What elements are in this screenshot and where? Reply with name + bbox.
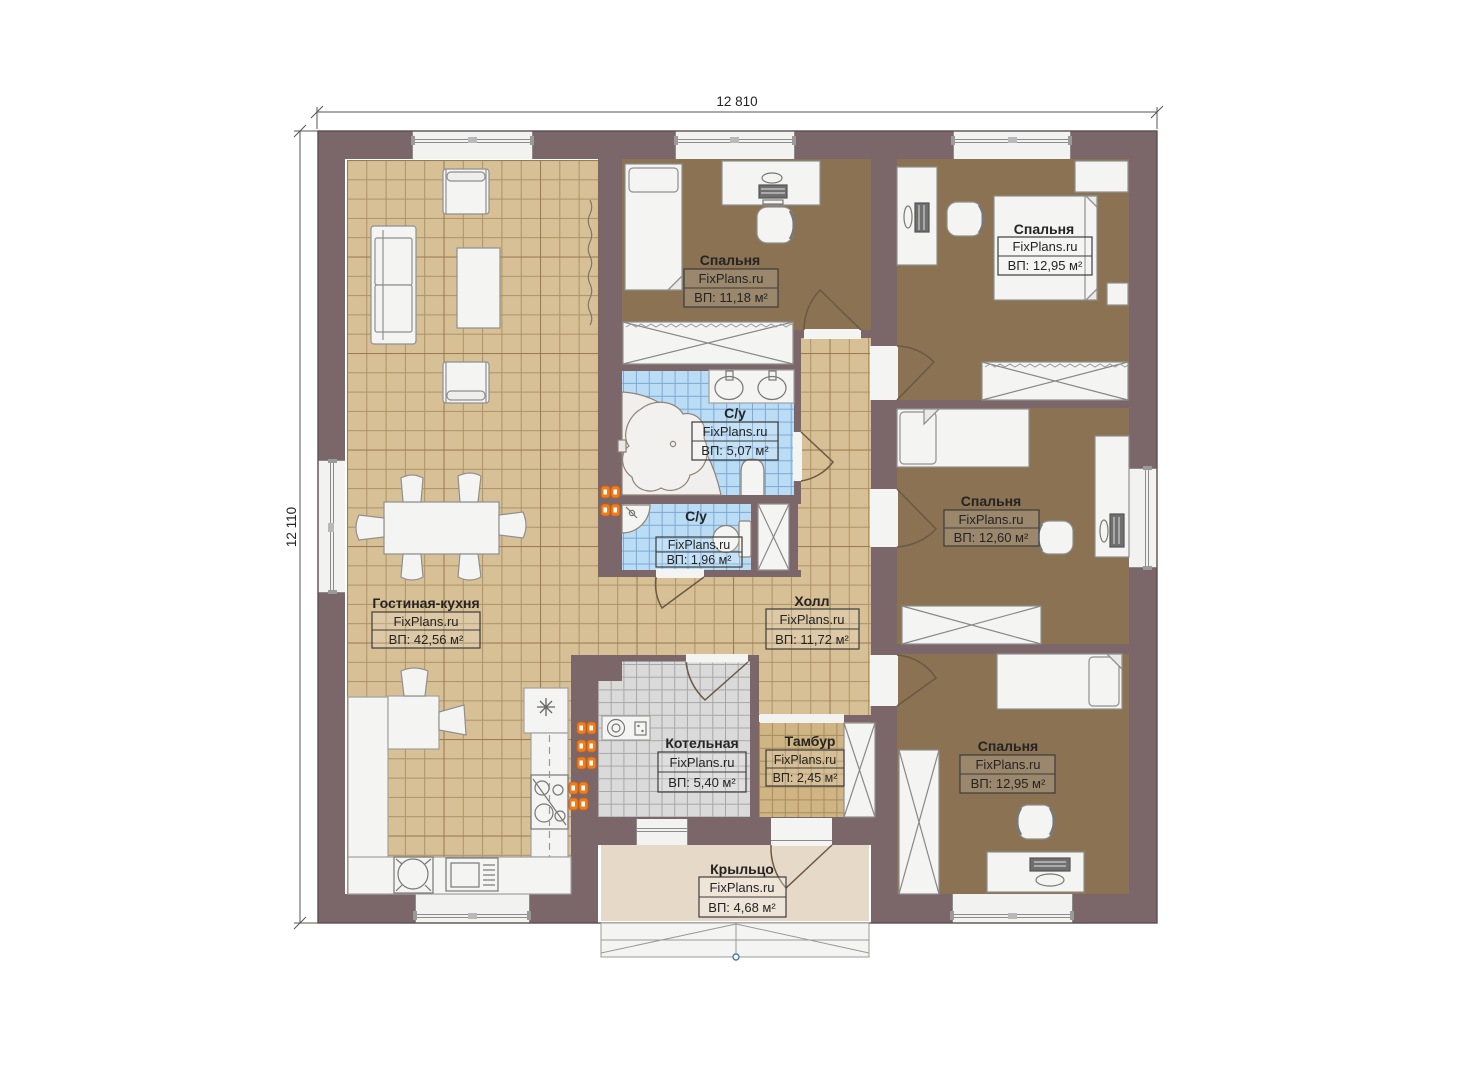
svg-text:12 110: 12 110 xyxy=(284,507,299,547)
svg-text:С/у: С/у xyxy=(685,508,707,524)
svg-text:ВП: 12,95 м²: ВП: 12,95 м² xyxy=(971,776,1046,791)
svg-text:ВП: 12,60 м²: ВП: 12,60 м² xyxy=(954,530,1029,545)
svg-text:ВП: 1,96 м²: ВП: 1,96 м² xyxy=(667,553,732,567)
svg-text:С/у: С/у xyxy=(724,405,746,421)
svg-text:FixPlans.ru: FixPlans.ru xyxy=(698,271,763,286)
svg-text:FixPlans.ru: FixPlans.ru xyxy=(709,880,774,895)
svg-text:Спальня: Спальня xyxy=(700,252,760,268)
svg-text:Холл: Холл xyxy=(794,593,829,609)
svg-text:ВП: 11,18 м²: ВП: 11,18 м² xyxy=(694,290,768,305)
svg-text:Тамбур: Тамбур xyxy=(785,733,836,749)
svg-text:FixPlans.ru: FixPlans.ru xyxy=(668,538,731,552)
svg-text:Котельная: Котельная xyxy=(665,735,738,751)
svg-text:Спальня: Спальня xyxy=(1014,221,1074,237)
svg-text:ВП: 11,72 м²: ВП: 11,72 м² xyxy=(775,632,849,647)
svg-text:FixPlans.ru: FixPlans.ru xyxy=(702,424,767,439)
svg-text:ВП: 4,68 м²: ВП: 4,68 м² xyxy=(708,900,776,915)
svg-text:Спальня: Спальня xyxy=(961,493,1021,509)
svg-text:Гостиная-кухня: Гостиная-кухня xyxy=(372,595,479,611)
svg-text:ВП: 5,07 м²: ВП: 5,07 м² xyxy=(701,443,769,458)
svg-text:Спальня: Спальня xyxy=(978,738,1038,754)
svg-text:FixPlans.ru: FixPlans.ru xyxy=(779,612,844,627)
svg-text:FixPlans.ru: FixPlans.ru xyxy=(393,614,458,629)
svg-text:FixPlans.ru: FixPlans.ru xyxy=(669,755,734,770)
svg-text:12 810: 12 810 xyxy=(716,94,757,109)
svg-text:Крыльцо: Крыльцо xyxy=(710,861,774,877)
svg-text:FixPlans.ru: FixPlans.ru xyxy=(975,757,1040,772)
svg-text:ВП: 5,40 м²: ВП: 5,40 м² xyxy=(668,775,736,790)
svg-text:FixPlans.ru: FixPlans.ru xyxy=(958,512,1023,527)
svg-text:ВП: 2,45 м²: ВП: 2,45 м² xyxy=(773,771,838,785)
svg-text:ВП: 42,56 м²: ВП: 42,56 м² xyxy=(389,632,464,647)
svg-text:ВП: 12,95 м²: ВП: 12,95 м² xyxy=(1008,258,1083,273)
svg-text:FixPlans.ru: FixPlans.ru xyxy=(774,753,837,767)
svg-text:FixPlans.ru: FixPlans.ru xyxy=(1012,239,1077,254)
